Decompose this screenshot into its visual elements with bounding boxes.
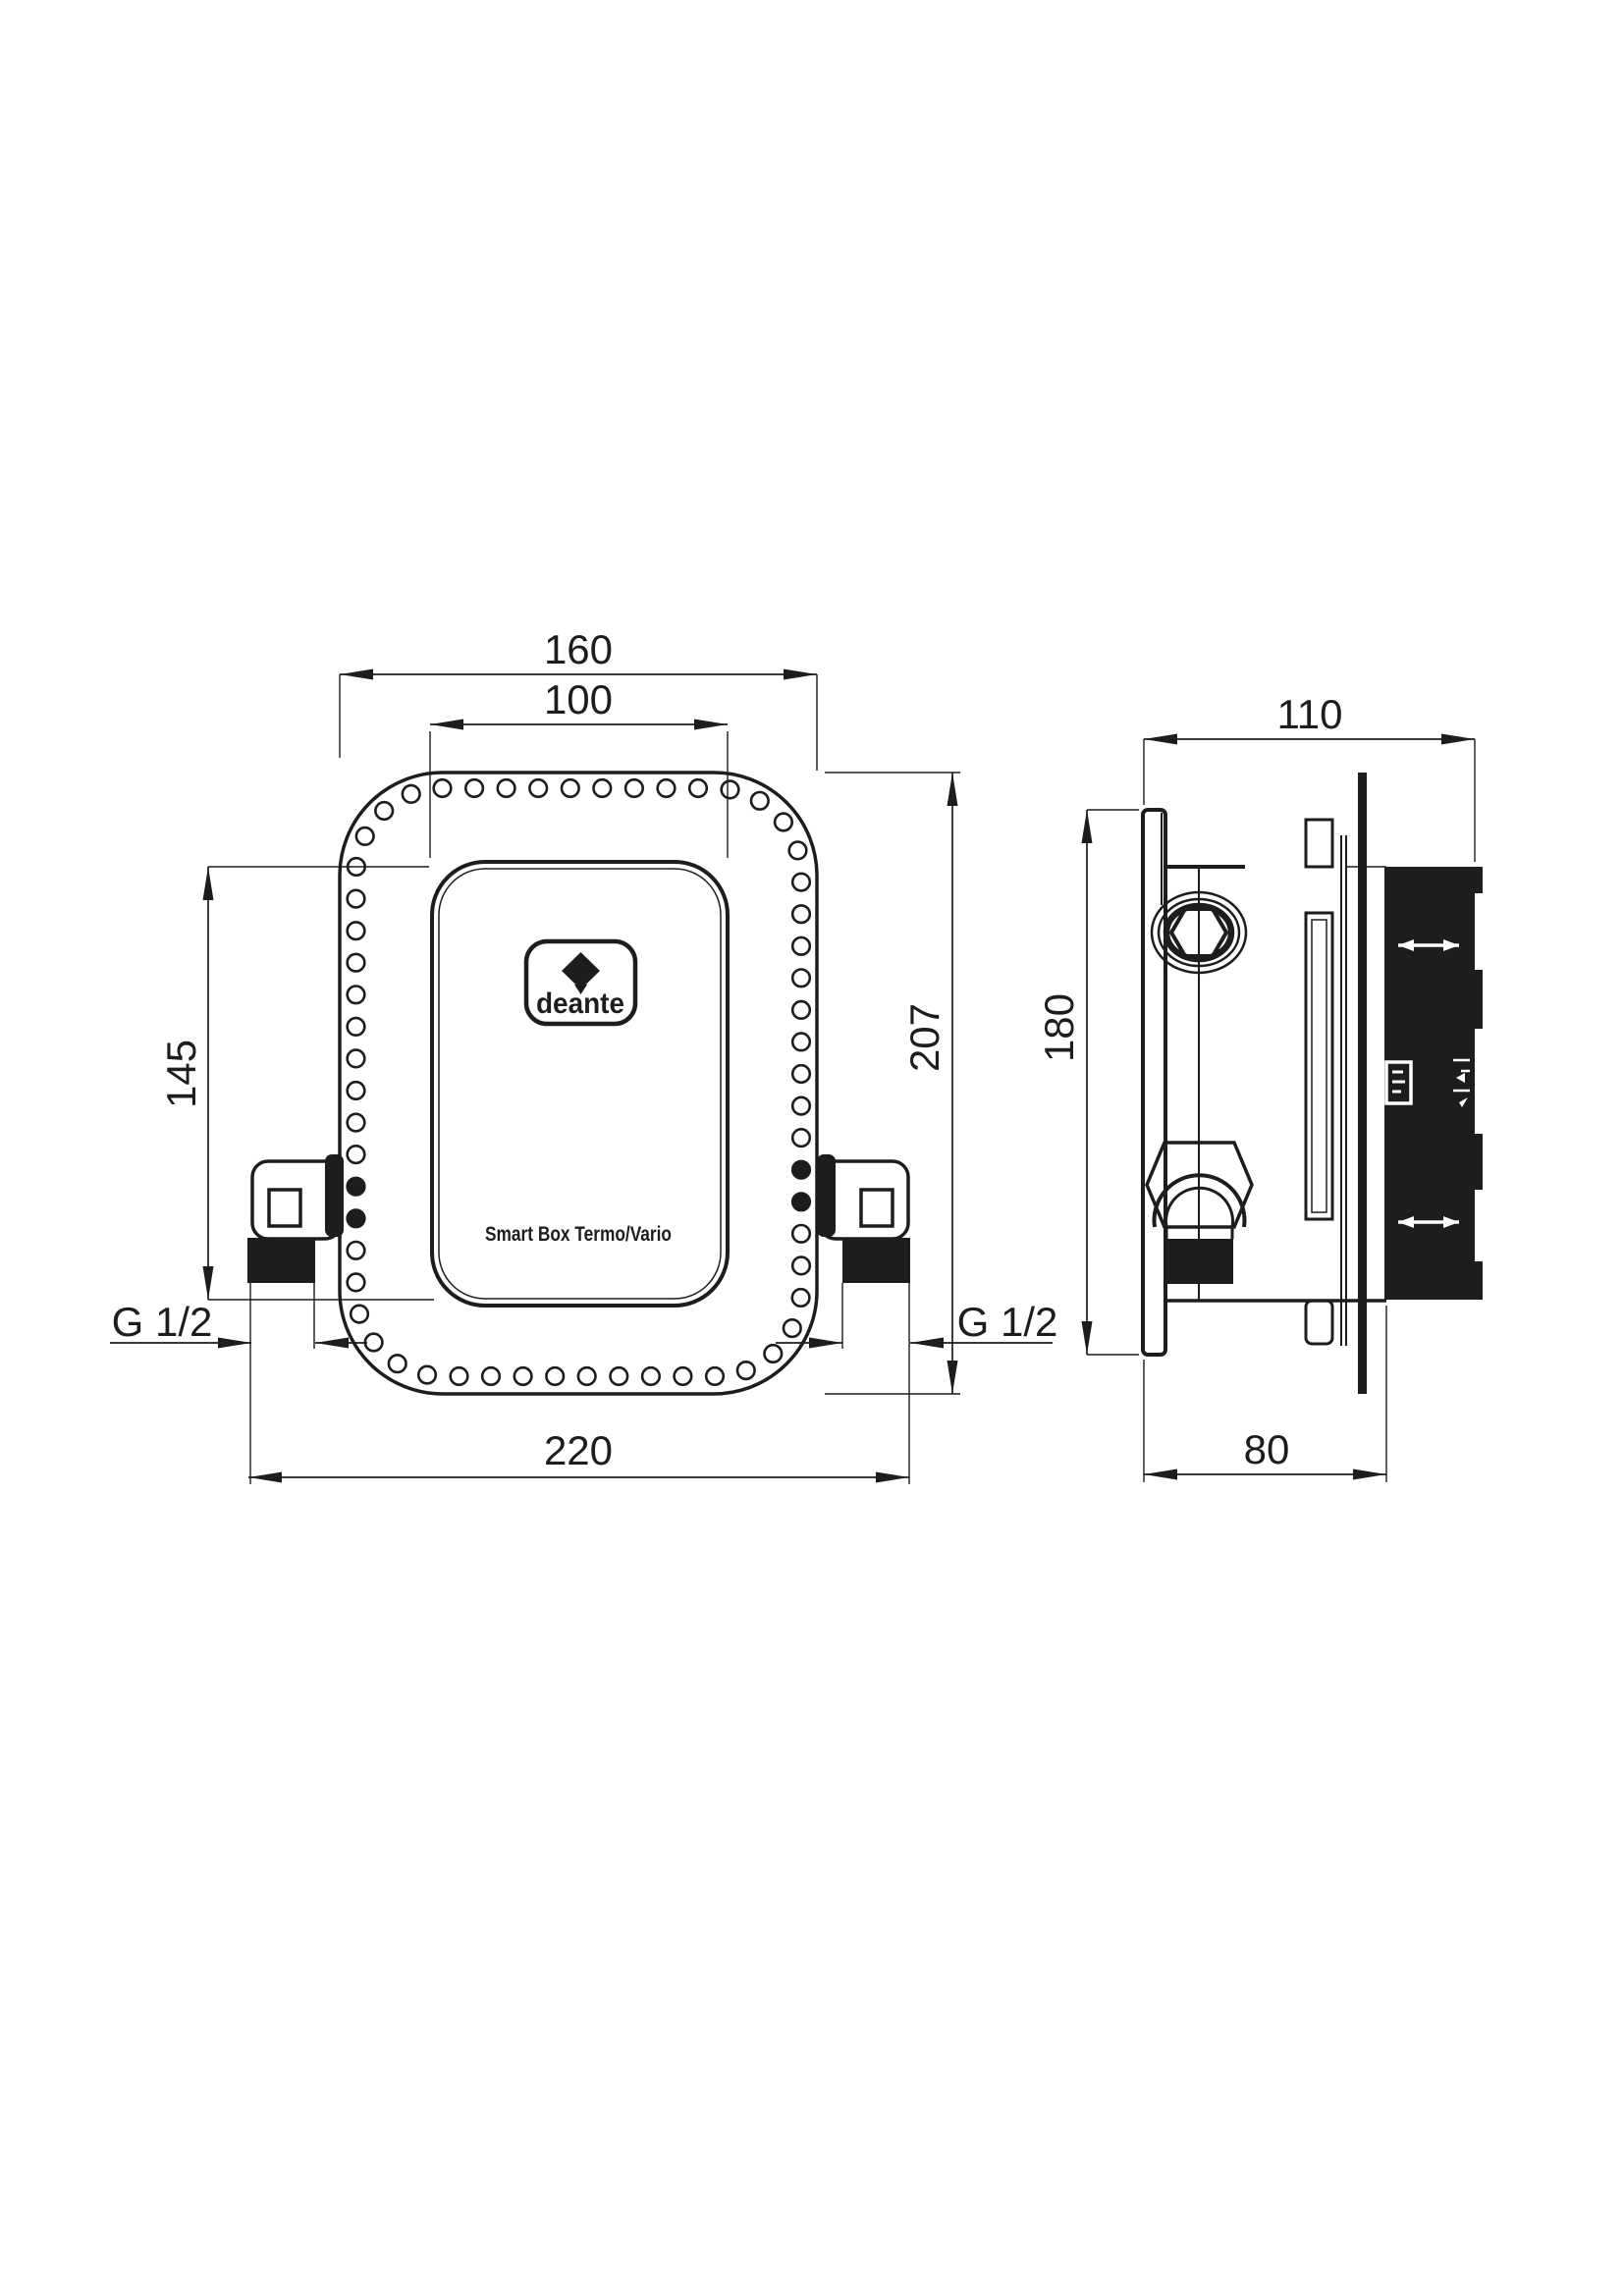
dim-label-cover-height: 145: [158, 1040, 204, 1108]
fixing-hole: [348, 922, 365, 939]
fixing-hole: [625, 779, 643, 797]
dim-overall-height: 207: [825, 773, 960, 1394]
rear-body-block: [1384, 867, 1483, 1300]
fixing-hole: [706, 1367, 724, 1385]
fixing-hole: [514, 1367, 532, 1385]
mounting-hole-ring-path: [356, 788, 802, 1376]
fixing-hole: [546, 1367, 564, 1385]
thread-callout-left: G 1/2: [110, 1283, 367, 1349]
fixing-hole: [611, 1367, 628, 1385]
fixing-hole: [792, 1225, 810, 1243]
mounting-box-outline: [340, 773, 817, 1394]
fixing-hole: [792, 970, 810, 988]
fixing-hole: [792, 1097, 810, 1115]
fixing-hole: [722, 781, 739, 799]
fixing-hole: [792, 937, 810, 955]
left-tab-screw-hole: [269, 1190, 300, 1226]
dim-label-cover-width: 100: [544, 676, 613, 722]
product-label: Smart Box Termo/Vario: [485, 1223, 672, 1246]
fixing-hole: [578, 1367, 596, 1385]
fixing-hole: [792, 1257, 810, 1275]
fixing-hole: [365, 1334, 383, 1352]
fixing-hole-filled: [792, 1194, 810, 1211]
dim-cover-height: 145: [158, 867, 434, 1300]
fixing-hole: [348, 890, 365, 908]
fixing-hole: [498, 779, 515, 797]
fixing-hole: [792, 1065, 810, 1083]
fixing-hole: [792, 1001, 810, 1019]
fixing-hole: [482, 1367, 500, 1385]
dim-cover-width: 100: [430, 676, 728, 858]
fixing-hole: [465, 779, 483, 797]
cartridge-housing: [1306, 913, 1332, 1219]
fixing-hole: [594, 779, 612, 797]
fixing-hole: [792, 1289, 810, 1307]
fixing-hole: [658, 779, 676, 797]
bottom-tab-side: [1306, 1301, 1332, 1344]
fixing-hole: [775, 814, 792, 831]
dim-label-overall-height: 207: [901, 1003, 947, 1072]
fixing-hole: [351, 1306, 368, 1323]
fixing-hole-filled: [348, 1178, 365, 1196]
fixing-hole: [348, 987, 365, 1004]
brand-logo-text: deante: [536, 988, 624, 1020]
left-pipe-connection: [247, 1238, 315, 1283]
dim-label-connection-span: 220: [544, 1427, 613, 1473]
fixing-hole: [451, 1367, 468, 1385]
fixing-hole: [348, 1274, 365, 1292]
fixing-hole: [765, 1345, 783, 1362]
brand-badge: deante: [526, 941, 635, 1024]
technical-drawing-page: deante Smart Box Termo/Vario 160 100 145: [0, 0, 1624, 2296]
top-tab-side: [1306, 820, 1332, 867]
dim-box-depth: 80: [1144, 1306, 1386, 1482]
thread-label-left: G 1/2: [112, 1299, 213, 1345]
wall-plane-bar: [1358, 773, 1367, 1394]
fixing-hole: [375, 802, 393, 820]
fixing-hole: [529, 779, 547, 797]
front-view: deante Smart Box Termo/Vario 160 100 145: [110, 626, 1057, 1484]
drawing-canvas: deante Smart Box Termo/Vario 160 100 145: [0, 0, 1624, 2296]
dim-label-box-depth: 80: [1244, 1426, 1290, 1472]
fixing-hole: [642, 1367, 660, 1385]
fixing-hole: [789, 842, 807, 860]
dim-connection-span: 220: [248, 1283, 909, 1484]
fixing-hole: [689, 779, 707, 797]
thread-label-right: G 1/2: [957, 1299, 1058, 1345]
fixing-hole: [418, 1366, 436, 1384]
right-tab-screw-hole: [861, 1190, 893, 1226]
right-pipe-connection: [842, 1238, 910, 1283]
fixing-hole: [434, 779, 452, 797]
side-view: 110 180 80: [1036, 691, 1483, 1482]
bottom-threaded-block: [1166, 1239, 1233, 1284]
fixing-hole: [792, 1129, 810, 1147]
fixing-hole: [356, 828, 374, 845]
fixing-hole: [348, 1146, 365, 1163]
fixing-hole: [403, 785, 420, 803]
dim-plate-height: 180: [1036, 810, 1139, 1355]
fixing-hole: [348, 1082, 365, 1099]
fixing-hole: [792, 1034, 810, 1051]
fixing-hole: [348, 1242, 365, 1259]
fixing-hole: [348, 1018, 365, 1036]
fixing-hole: [792, 874, 810, 891]
fixing-hole-filled: [348, 1210, 365, 1228]
dim-label-plate-height: 180: [1036, 993, 1082, 1062]
fixing-hole: [737, 1362, 755, 1379]
fixing-hole: [348, 954, 365, 972]
fixing-hole: [348, 1050, 365, 1068]
diamond-icon: [562, 952, 600, 989]
dim-label-overall-width: 160: [544, 626, 613, 672]
fixing-hole: [784, 1319, 801, 1337]
fixing-hole: [389, 1355, 406, 1372]
mounting-hole-ring: [348, 779, 810, 1385]
fixing-hole: [348, 1114, 365, 1132]
fixing-hole: [792, 905, 810, 923]
fixing-hole: [751, 792, 769, 810]
cartridge-housing-inner: [1312, 920, 1326, 1212]
fixing-hole: [675, 1367, 692, 1385]
dim-overall-depth: 110: [1144, 691, 1475, 862]
fixing-hole: [562, 779, 579, 797]
dim-label-overall-depth: 110: [1277, 691, 1343, 737]
fixing-hole-filled: [792, 1161, 810, 1179]
